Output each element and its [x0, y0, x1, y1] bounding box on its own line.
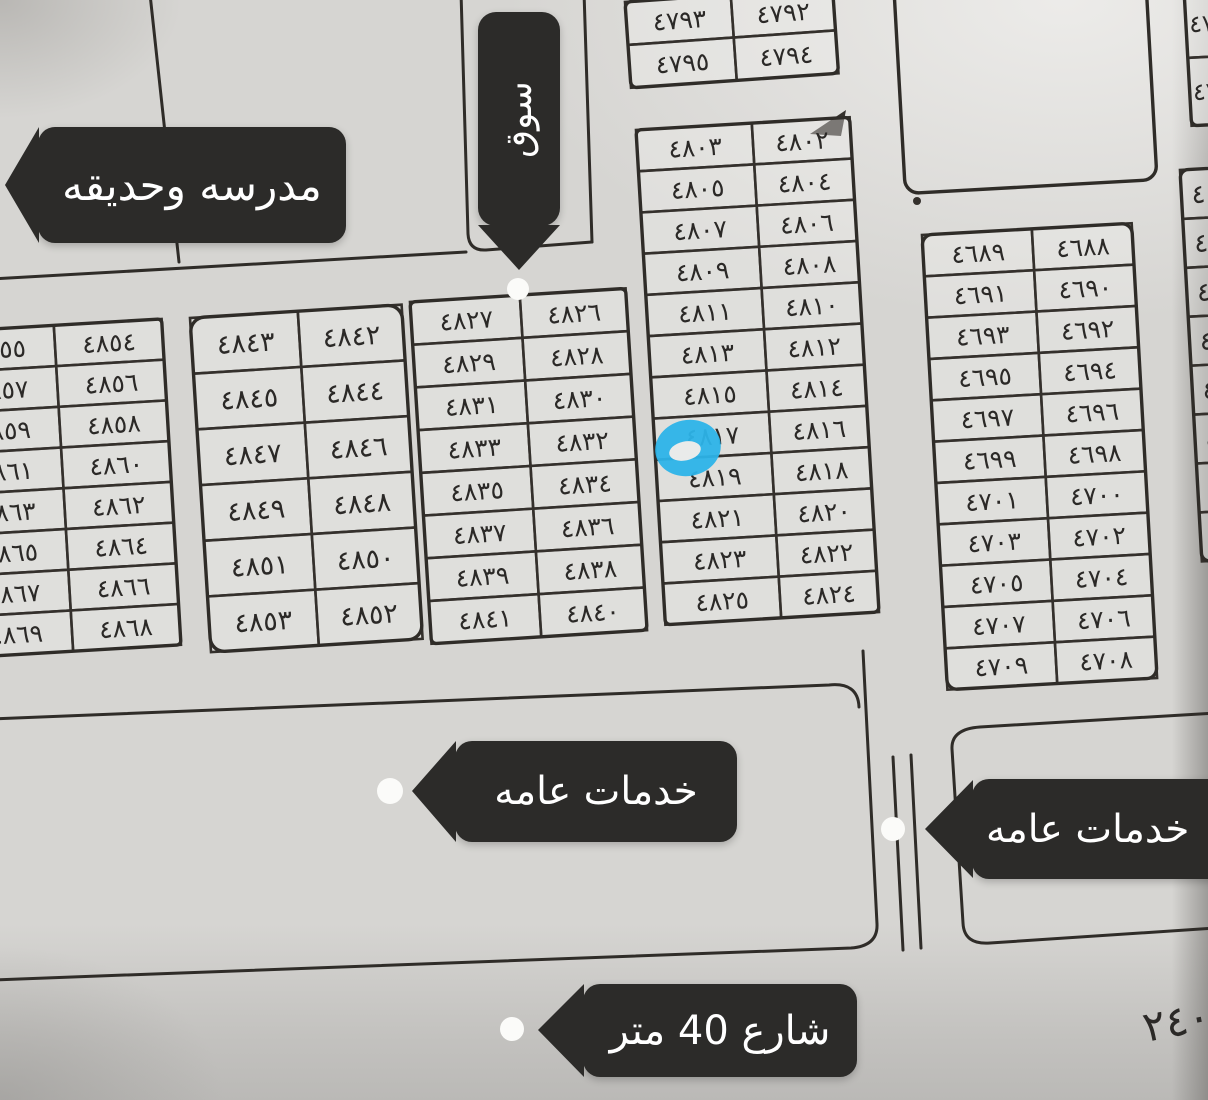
plot-number: ٤٦٩٠: [1058, 273, 1113, 305]
public-services-right-callout[interactable]: خدمات عامه: [972, 779, 1208, 879]
plot-number: ٤٨٢٢: [799, 538, 854, 570]
public-services-left-label: خدمات عامه: [494, 769, 697, 814]
plot-number: ٤٨٤٢: [322, 320, 382, 355]
plot-number: ٤٨٣٢: [554, 426, 609, 458]
plot-number: ٤: [1204, 424, 1208, 455]
plot-number: ٤٧٩٢: [755, 0, 811, 29]
plot-number: ٤٨٦٢: [91, 490, 146, 522]
plot-number: ٤٧٠٦: [1076, 603, 1131, 635]
plot-number: ٤٨٣٣: [447, 432, 502, 464]
plot-number: ٤٨١٤: [789, 373, 844, 405]
plot-number: ٤٦٩٩: [962, 444, 1017, 476]
plot-number: ٤٨٠٦: [779, 208, 834, 240]
plot-number: ٤٨٥٤: [81, 327, 136, 359]
plot-map-photo: ٤٧٩٣٤٧٩٢٤٧٩٥٤٧٩٤٤٨٠٣٤٨٠٢٤٨٠٥٤٨٠٤٤٨٠٧٤٨٠٦…: [0, 0, 1208, 1100]
plot-number: ٤: [1199, 326, 1208, 357]
street-line: [893, 757, 903, 950]
plot-number: ٤٨٥٢: [339, 598, 399, 633]
school-garden-label: مدرسه وحديقه: [62, 161, 322, 210]
plot-number: ٤٨٣١: [444, 390, 499, 422]
plot-number: ٤٨٣٠: [552, 383, 607, 415]
street-40m-callout[interactable]: شارع 40 متر: [583, 984, 857, 1077]
plot-number: ٤٨٤٤: [325, 375, 385, 410]
plot-number: ٤: [1202, 375, 1208, 406]
plot-number: ٤٨٣٨: [562, 554, 617, 586]
plot-number: ٤٨٢٥: [694, 585, 749, 617]
plot-number: ٤٨٣٧: [452, 518, 507, 550]
plot-number: ٤٨٢٨: [549, 340, 604, 372]
block-4802-4825: ٤٨٠٣٤٨٠٢٤٨٠٥٤٨٠٤٤٨٠٧٤٨٠٦٤٨٠٩٤٨٠٨٤٨١١٤٨١٠…: [636, 117, 879, 624]
plot-number: ٤٨١٣: [680, 338, 735, 370]
plot-number: ٤٨٠٧: [672, 214, 727, 246]
block-4854-4869: ٤٨٥٥٤٨٥٤٤٨٥٧٤٨٥٦٤٨٥٩٤٨٥٨٤٨٦١٤٨٦٠٤٨٦٣٤٨٦٢…: [0, 319, 181, 658]
plot-number: ٤٨١٢: [787, 331, 842, 363]
plot-number: ٤٨٦٠: [89, 449, 144, 481]
corner-note: ٢٤٠: [1139, 991, 1208, 1052]
plot-number: ٤٧٠٧: [971, 609, 1026, 641]
plot-number: ٤٨٢٧: [439, 304, 494, 336]
plot-number: ٤٧: [1192, 77, 1208, 106]
plot-number: ٤٨٦٦: [96, 571, 151, 603]
plot-number: ٤٦٩٥: [957, 361, 1012, 393]
plot-number: ٤٨٣٦: [560, 511, 615, 543]
plot-number: ٤: [1196, 277, 1208, 308]
plot-number: ٤٨٣٩: [455, 561, 510, 593]
plot-number: ٤٨١٥: [682, 379, 737, 411]
plot-number: ٤٧٠٥: [969, 568, 1024, 600]
plot-number: ٤٨٠٩: [675, 255, 730, 287]
map-pin-dot[interactable]: [507, 278, 529, 300]
plot-number: ٤٨٥٧: [0, 374, 29, 406]
plot-number: ٤٧٠٩: [974, 650, 1029, 682]
plot-number: ٤٧٩٥: [655, 47, 711, 80]
ink-blob: [913, 197, 921, 205]
plot-number: ٤٨٤٦: [329, 431, 389, 466]
plot-number: ٤٧٩٣: [652, 4, 708, 37]
map-pin-dot[interactable]: [881, 817, 905, 841]
plot-number: ٤٨٢٤: [801, 579, 856, 611]
street-line: [584, 0, 592, 242]
plot-number: ٤٨٦٧: [0, 578, 41, 610]
plot-number: ٤٨٠٢: [774, 125, 829, 157]
plot-number: ٤٨٠٨: [782, 249, 837, 281]
map-pin-dot[interactable]: [500, 1017, 524, 1041]
plot-number: ٤٧٠٨: [1078, 645, 1133, 677]
school-garden-callout[interactable]: مدرسه وحديقه: [38, 127, 346, 243]
block-4826-4841: ٤٨٢٧٤٨٢٦٤٨٢٩٤٨٢٨٤٨٣١٤٨٣٠٤٨٣٣٤٨٣٢٤٨٣٥٤٨٣٤…: [410, 288, 647, 643]
plot-number: ٤٦٩٦: [1065, 397, 1120, 429]
market-callout[interactable]: سوق: [478, 12, 560, 226]
plot-number: ٤: [1191, 180, 1207, 211]
plot-number: ٤٨٠٣: [667, 132, 722, 164]
plot-number: ٤٧٠٠: [1069, 479, 1124, 511]
plot-number: ٤٨٢٦: [546, 297, 601, 329]
plot-number: ٤٧٠٤: [1074, 562, 1129, 594]
plot-number: ٤٧٠٢: [1071, 521, 1126, 553]
plot-number: ٤٦٩٨: [1067, 438, 1122, 470]
block-north-pair: ٤٧٩٣٤٧٩٢٤٧٩٥٤٧٩٤: [625, 0, 838, 88]
plot-number: ٤٨٤٨: [332, 487, 392, 522]
empty-plot-box: [892, 0, 1157, 194]
block-east-edge: ٤٤٤٤٤٤٤٤: [1180, 164, 1208, 562]
plot-number: ٤٨٤٩: [226, 493, 286, 528]
plot-number: ٤٨٦٨: [98, 612, 153, 644]
plot-number: ٤٨١٦: [791, 414, 846, 446]
plot-number: ٤٨١٠: [784, 290, 839, 322]
plot-number: ٤٨٦١: [0, 456, 34, 488]
plot-number: ٤٨٦٣: [0, 496, 36, 528]
public-services-left-callout[interactable]: خدمات عامه: [455, 741, 737, 842]
plot-number: ٤٨٤٠: [565, 596, 620, 628]
street-line: [0, 685, 859, 719]
plot-number: ٤٨٣٤: [557, 468, 612, 500]
plot-number: ٤٦٩٣: [955, 320, 1010, 352]
map-pin-dot[interactable]: [377, 778, 403, 804]
plot-number: ٤٧٠٣: [967, 526, 1022, 558]
plot-number: ٤٦٨٩: [950, 237, 1005, 269]
plot-number: ٤٧: [1188, 9, 1208, 38]
street-40m-label: شارع 40 متر: [610, 1008, 831, 1054]
plot-number: ٤٨٤٥: [219, 382, 279, 417]
plot-number: ٤٨٢٣: [692, 544, 747, 576]
plot-number: ٤٦٩٧: [960, 402, 1015, 434]
plot-number: ٤٨٥٣: [233, 605, 293, 640]
plot-number: ٤٨١٨: [794, 455, 849, 487]
plot-number: ٤٨٦٩: [0, 619, 44, 651]
plot-number: ٤٨٥٥: [0, 333, 27, 365]
block-4688-4709: ٤٦٨٩٤٦٨٨٤٦٩١٤٦٩٠٤٦٩٣٤٦٩٢٤٦٩٥٤٦٩٤٤٦٩٧٤٦٩٦…: [922, 223, 1157, 689]
plot-number: ٤٧٠١: [964, 485, 1019, 517]
plot-number: ٤٨٢٠: [796, 496, 851, 528]
plot-number: ٤٨٤٧: [223, 438, 283, 473]
plot-number: ٤٦٩١: [953, 278, 1008, 310]
plot-number: ٤٦٨٨: [1055, 231, 1110, 263]
plot-number: ٤٨٦٥: [0, 537, 39, 569]
block-4842-4853: ٤٨٤٣٤٨٤٢٤٨٤٥٤٨٤٤٤٨٤٧٤٨٤٦٤٨٤٩٤٨٤٨٤٨٥١٤٨٥٠…: [190, 305, 423, 652]
plot-number: ٤٨٥٨: [86, 408, 141, 440]
plot-number: ٤٨٥٩: [0, 415, 32, 447]
block-northeast-edge: ٤٧٤٧: [1184, 0, 1208, 126]
market-label: سوق: [498, 81, 539, 158]
public-services-right-label: خدمات عامه: [986, 807, 1189, 852]
plot-number: ٤٧٩٤: [758, 40, 814, 73]
plot-number: ٤٨٥٠: [336, 542, 396, 577]
plot-number: ٤٨٣٥: [449, 475, 504, 507]
plot-number: ٤: [1193, 228, 1208, 259]
plot-number: ٤٨٥٦: [84, 368, 139, 400]
plot-number: ٤٨٦٤: [93, 531, 148, 563]
plot-number: ٤٨٢٩: [441, 347, 496, 379]
plot-number: ٤٨٠٤: [777, 166, 832, 198]
plot-number: ٤٨١١: [677, 297, 732, 329]
plot-number: ٤٨٥١: [230, 549, 290, 584]
plot-number: ٤٨٤٣: [216, 326, 276, 361]
plot-number: ٤٨٠٥: [670, 173, 725, 205]
street-line: [0, 252, 466, 279]
street-line: [911, 755, 921, 948]
plot-number: ٤٦٩٢: [1060, 314, 1115, 346]
plot-number: ٤٦٩٤: [1062, 355, 1117, 387]
plot-number: ٤٨٢١: [690, 503, 745, 535]
plot-number: ٤٨٤١: [457, 603, 512, 635]
